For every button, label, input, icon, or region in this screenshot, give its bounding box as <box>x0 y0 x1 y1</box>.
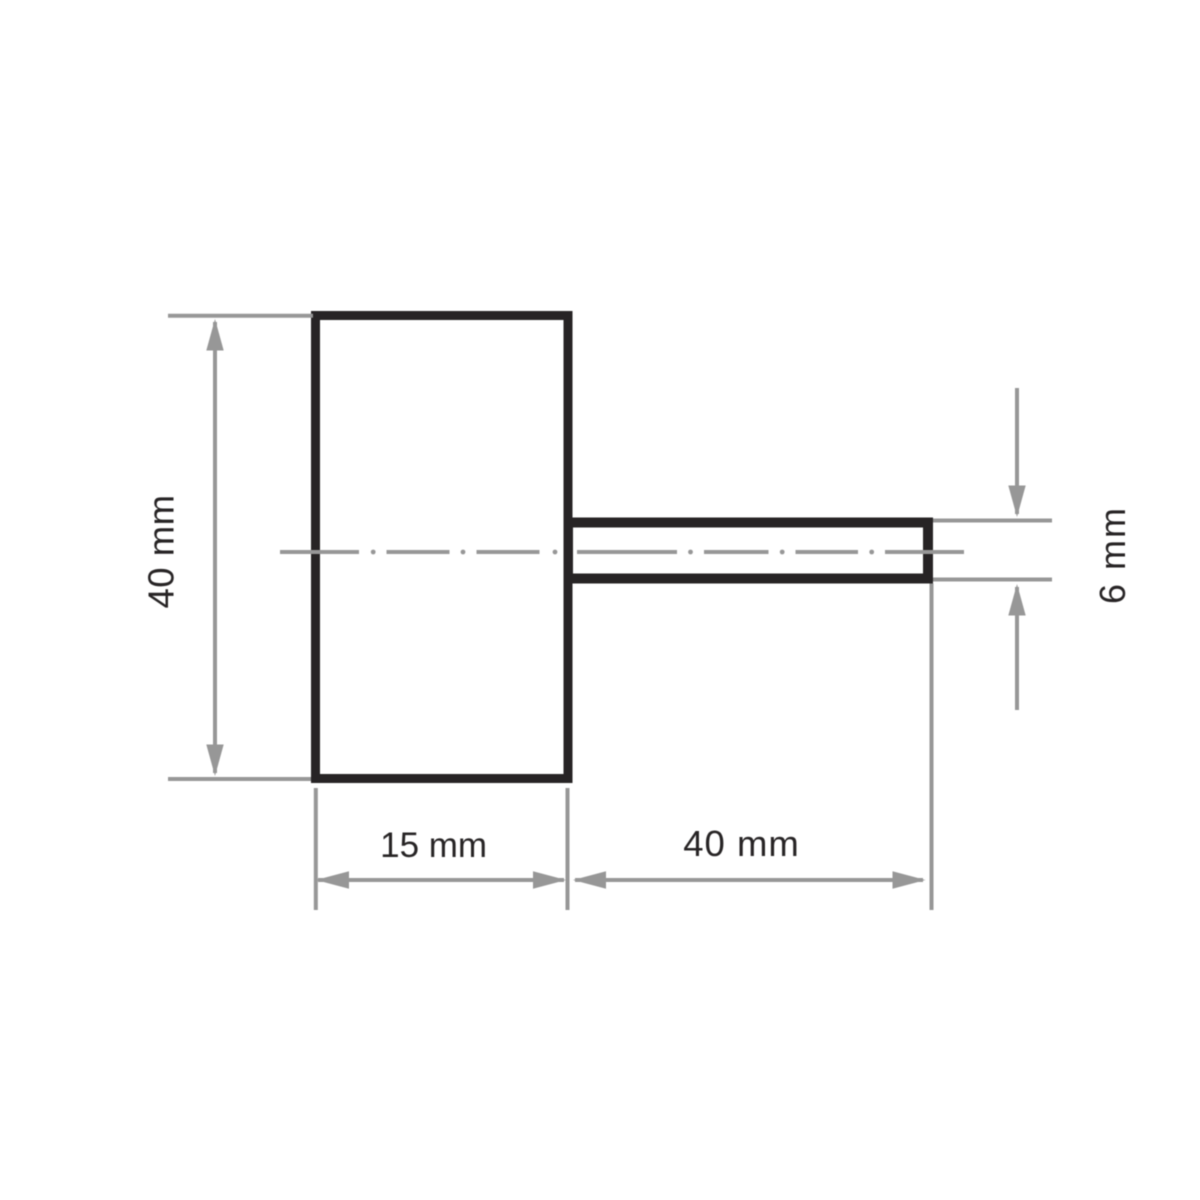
svg-text:40 mm: 40 mm <box>141 494 182 608</box>
svg-text:40 mm: 40 mm <box>683 823 800 864</box>
svg-text:6 mm: 6 mm <box>1092 506 1133 604</box>
svg-text:15 mm: 15 mm <box>380 826 487 865</box>
